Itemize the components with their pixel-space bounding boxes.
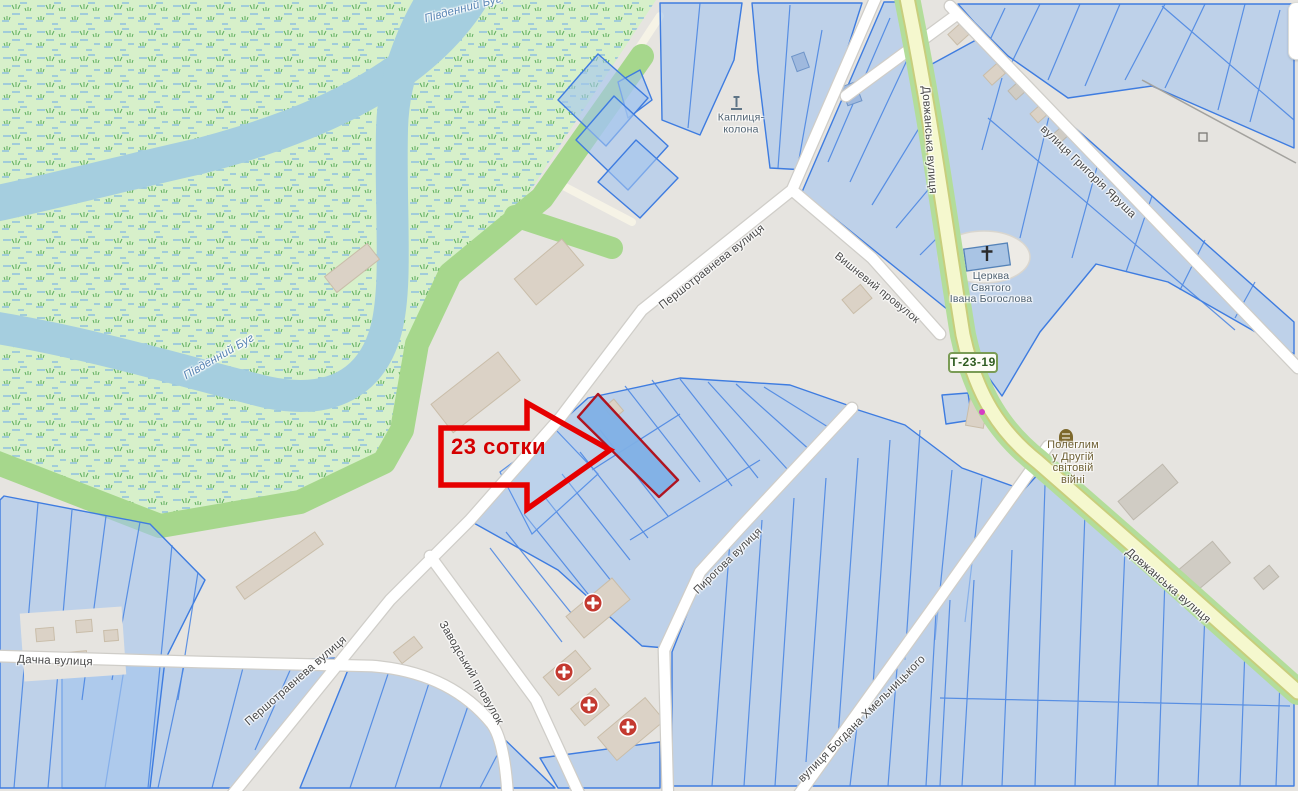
area-annotation: 23 сотки xyxy=(451,434,546,460)
farmstead-clearing xyxy=(20,607,126,682)
point-marker xyxy=(979,409,985,415)
memorial-label: Полеглим у Другій світовій війні xyxy=(1047,440,1099,486)
church-label: Церква Святого Івана Богослова xyxy=(950,271,1033,306)
chapel-label: Каплиця- колона xyxy=(718,113,764,136)
map-control-sliver[interactable] xyxy=(1288,2,1298,60)
map-canvas[interactable]: Першотравнева вулиця Першотравнева вулиц… xyxy=(0,0,1298,791)
street-label-dachna: Дачна вулиця xyxy=(17,654,93,669)
road-ref-shield: Т-23-19 xyxy=(948,352,998,373)
map-layers xyxy=(0,0,1298,791)
